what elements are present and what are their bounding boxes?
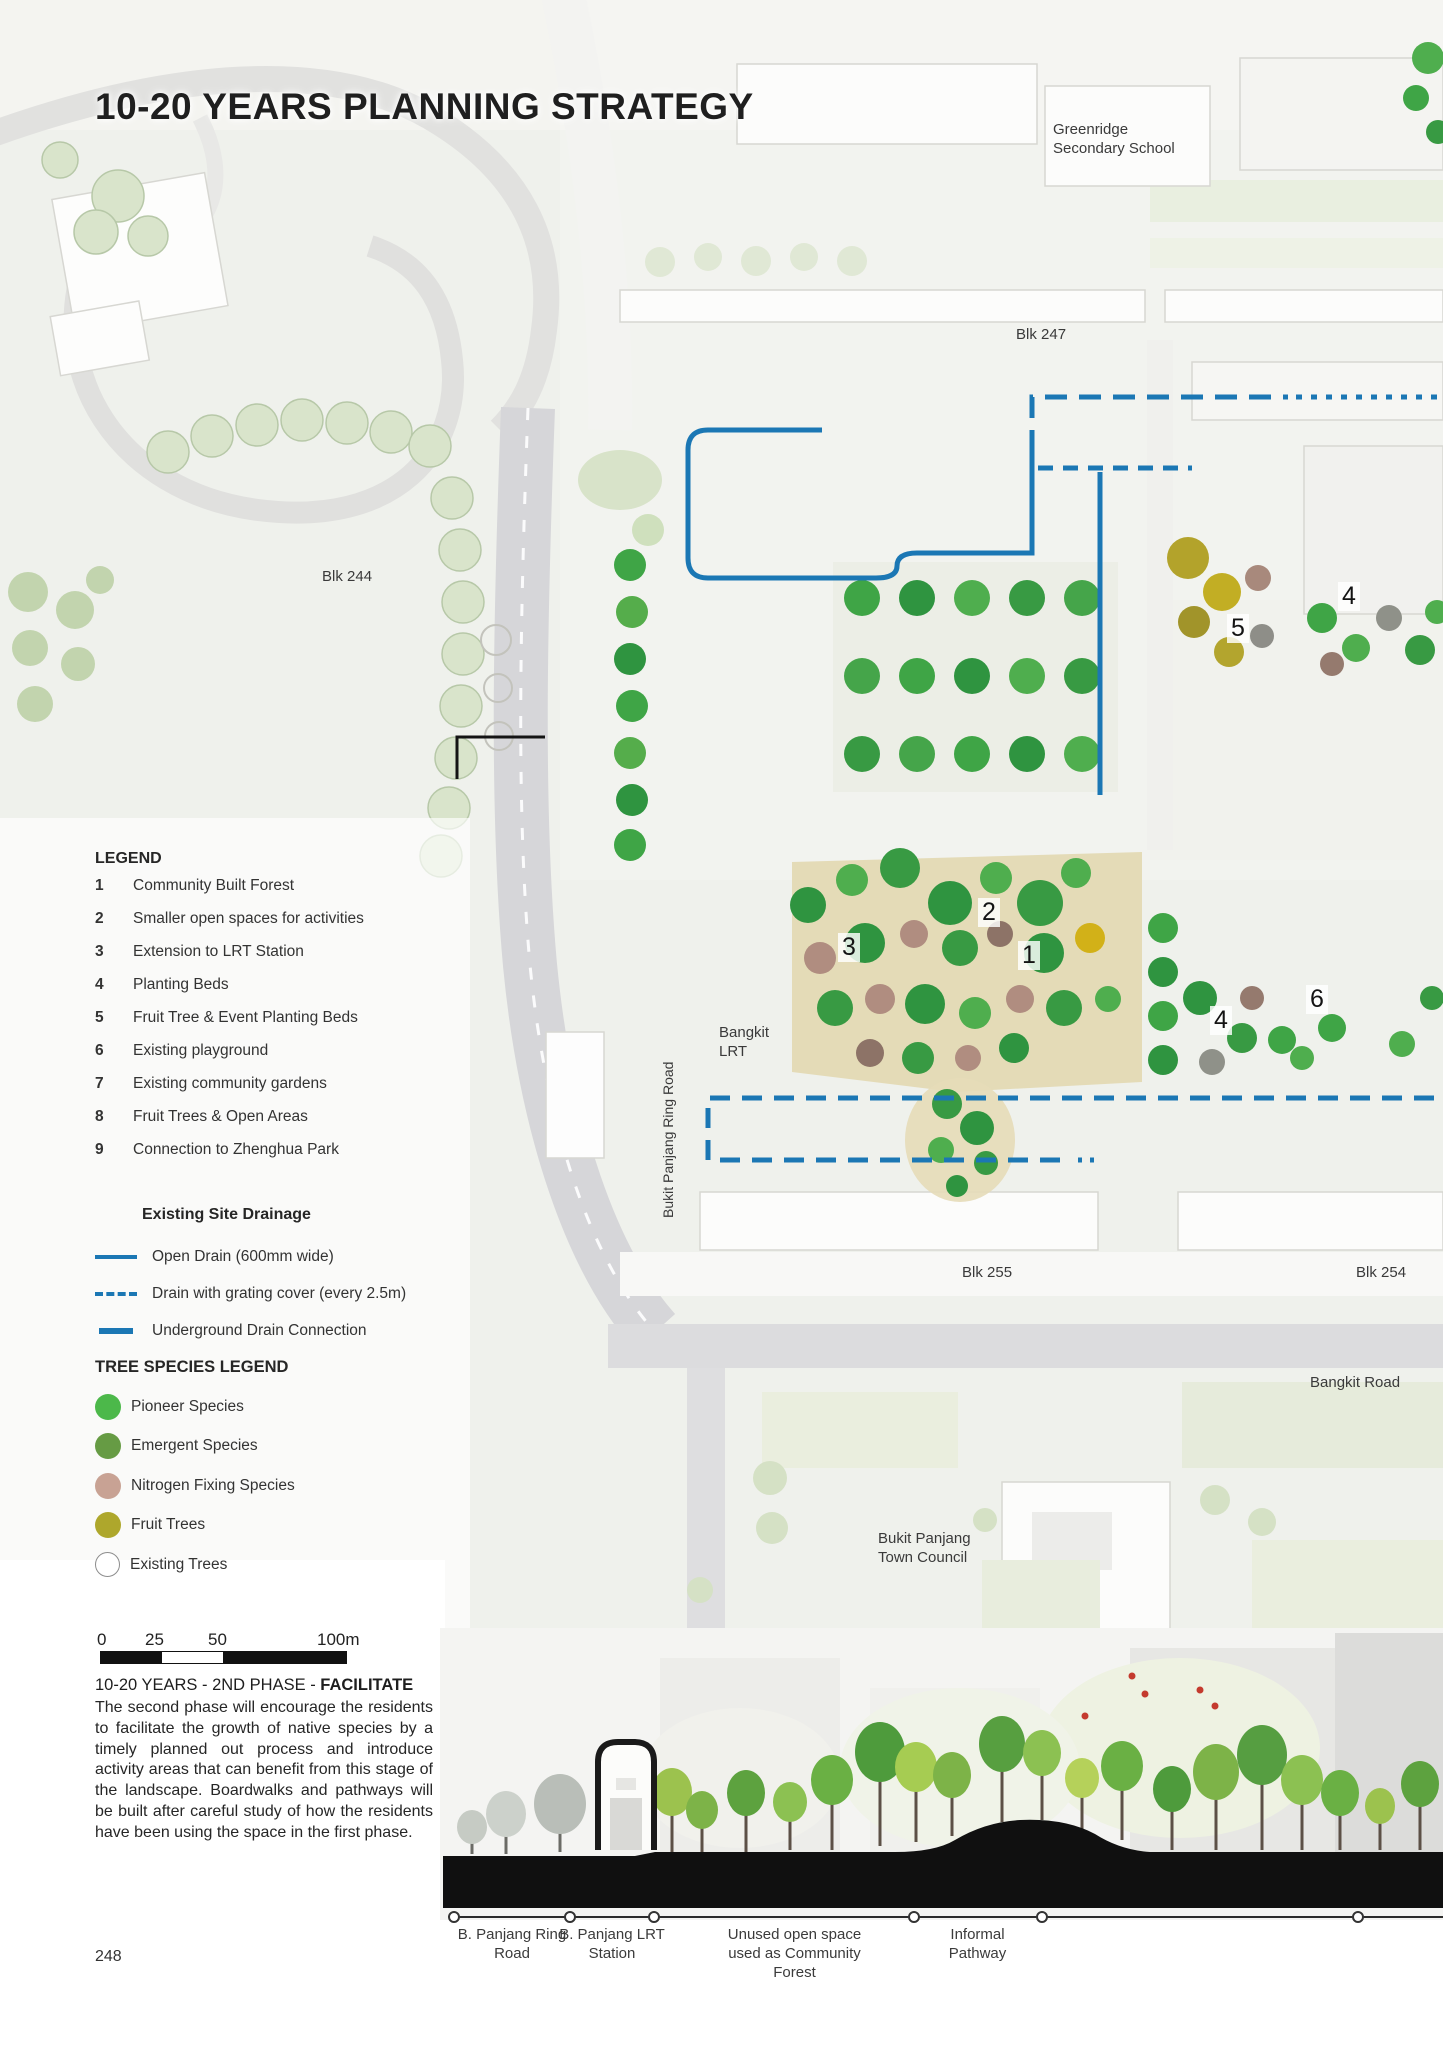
phase-heading: 10-20 YEARS - 2ND PHASE - FACILITATE bbox=[95, 1676, 433, 1695]
existing-trees-swatch bbox=[95, 1552, 120, 1577]
pioneer-species-swatch bbox=[95, 1394, 121, 1420]
map-label-bangkit-road: Bangkit Road bbox=[1310, 1374, 1400, 1393]
legend: LEGEND 1Community Built Forest 2Smaller … bbox=[95, 850, 440, 1174]
map-label-blk247: Blk 247 bbox=[1016, 326, 1066, 345]
page-number: 248 bbox=[95, 1948, 122, 1966]
drainage-legend-item: Underground Drain Connection bbox=[95, 1312, 445, 1349]
map-label-ring-road: Bukit Panjang Ring Road bbox=[660, 1062, 676, 1218]
map-label-blk244: Blk 244 bbox=[322, 568, 372, 587]
legend-item: 3Extension to LRT Station bbox=[95, 943, 440, 976]
map-label-blk255: Blk 255 bbox=[962, 1264, 1012, 1283]
section-rendering bbox=[440, 1628, 1443, 1920]
section-label-lrt-station: B. Panjang LRT Station bbox=[552, 1926, 672, 1964]
nitrogen-fixing-swatch bbox=[95, 1473, 121, 1499]
underground-drain-line-swatch bbox=[99, 1328, 133, 1334]
emergent-species-swatch bbox=[95, 1433, 121, 1459]
tree-legend-item: Emergent Species bbox=[95, 1427, 415, 1467]
legend-item: 7Existing community gardens bbox=[95, 1075, 440, 1108]
map-marker-6: 6 bbox=[1306, 985, 1328, 1014]
legend-item: 9Connection to Zhenghua Park bbox=[95, 1141, 440, 1174]
tree-legend-item: Existing Trees bbox=[95, 1545, 415, 1585]
map-label-town-council: Bukit Panjang Town Council bbox=[878, 1530, 998, 1568]
section-tick-dot bbox=[908, 1911, 920, 1923]
section-tick-dot bbox=[648, 1911, 660, 1923]
map-label-blk254: Blk 254 bbox=[1356, 1264, 1406, 1283]
section-tick-dot bbox=[1036, 1911, 1048, 1923]
tree-legend-item: Fruit Trees bbox=[95, 1506, 415, 1546]
scale-bar: 0 25 50 100m bbox=[95, 1630, 395, 1672]
scale-tick: 25 bbox=[145, 1630, 164, 1650]
section-tick-dot bbox=[564, 1911, 576, 1923]
drainage-legend-title: Existing Site Drainage bbox=[142, 1206, 445, 1224]
drainage-legend-item: Open Drain (600mm wide) bbox=[95, 1238, 445, 1275]
scale-bar-graphic bbox=[100, 1651, 347, 1664]
tree-legend-title: TREE SPECIES LEGEND bbox=[95, 1358, 415, 1377]
section-tick-dot bbox=[1352, 1911, 1364, 1923]
section-label-community-forest: Unused open space used as Community Fore… bbox=[712, 1926, 877, 1982]
map-marker-4-upper: 4 bbox=[1338, 582, 1360, 611]
phase-body-text: The second phase will encourage the resi… bbox=[95, 1698, 433, 1844]
map-label-bangkit-lrt: Bangkit LRT bbox=[719, 1024, 791, 1062]
scale-tick: 50 bbox=[208, 1630, 227, 1650]
legend-item: 1Community Built Forest bbox=[95, 877, 440, 910]
tree-legend-item: Nitrogen Fixing Species bbox=[95, 1466, 415, 1506]
legend-item: 5Fruit Tree & Event Planting Beds bbox=[95, 1009, 440, 1042]
map-marker-2: 2 bbox=[978, 898, 1000, 927]
legend-item: 6Existing playground bbox=[95, 1042, 440, 1075]
map-label-school: Greenridge Secondary School bbox=[1053, 121, 1188, 159]
map-marker-1: 1 bbox=[1018, 941, 1040, 970]
section-scale-line bbox=[452, 1916, 1443, 1918]
map-marker-5: 5 bbox=[1227, 614, 1249, 643]
legend-item: 2Smaller open spaces for activities bbox=[95, 910, 440, 943]
legend-item: 4Planting Beds bbox=[95, 976, 440, 1009]
legend-title: LEGEND bbox=[95, 850, 440, 868]
tree-legend-item: Pioneer Species bbox=[95, 1387, 415, 1427]
map-marker-4-lower: 4 bbox=[1210, 1006, 1232, 1035]
drainage-legend-item: Drain with grating cover (every 2.5m) bbox=[95, 1275, 445, 1312]
scale-tick: 0 bbox=[97, 1630, 106, 1650]
open-drain-line-swatch bbox=[95, 1255, 137, 1259]
map-marker-3: 3 bbox=[838, 933, 860, 962]
page-title: 10-20 YEARS PLANNING STRATEGY bbox=[95, 86, 754, 128]
section-tick-dot bbox=[448, 1911, 460, 1923]
scale-tick: 100m bbox=[317, 1630, 360, 1650]
section-label-informal-pathway: Informal Pathway bbox=[925, 1926, 1030, 1964]
drainage-legend: Existing Site Drainage Open Drain (600mm… bbox=[95, 1206, 445, 1349]
legend-item: 8Fruit Trees & Open Areas bbox=[95, 1108, 440, 1141]
grated-drain-line-swatch bbox=[95, 1292, 137, 1296]
tree-species-legend: TREE SPECIES LEGEND Pioneer Species Emer… bbox=[95, 1358, 415, 1585]
phase-description: 10-20 YEARS - 2ND PHASE - FACILITATE The… bbox=[95, 1676, 433, 1844]
document-page: 10-20 YEARS PLANNING STRATEGY Greenridge… bbox=[0, 0, 1443, 2048]
fruit-trees-swatch bbox=[95, 1512, 121, 1538]
